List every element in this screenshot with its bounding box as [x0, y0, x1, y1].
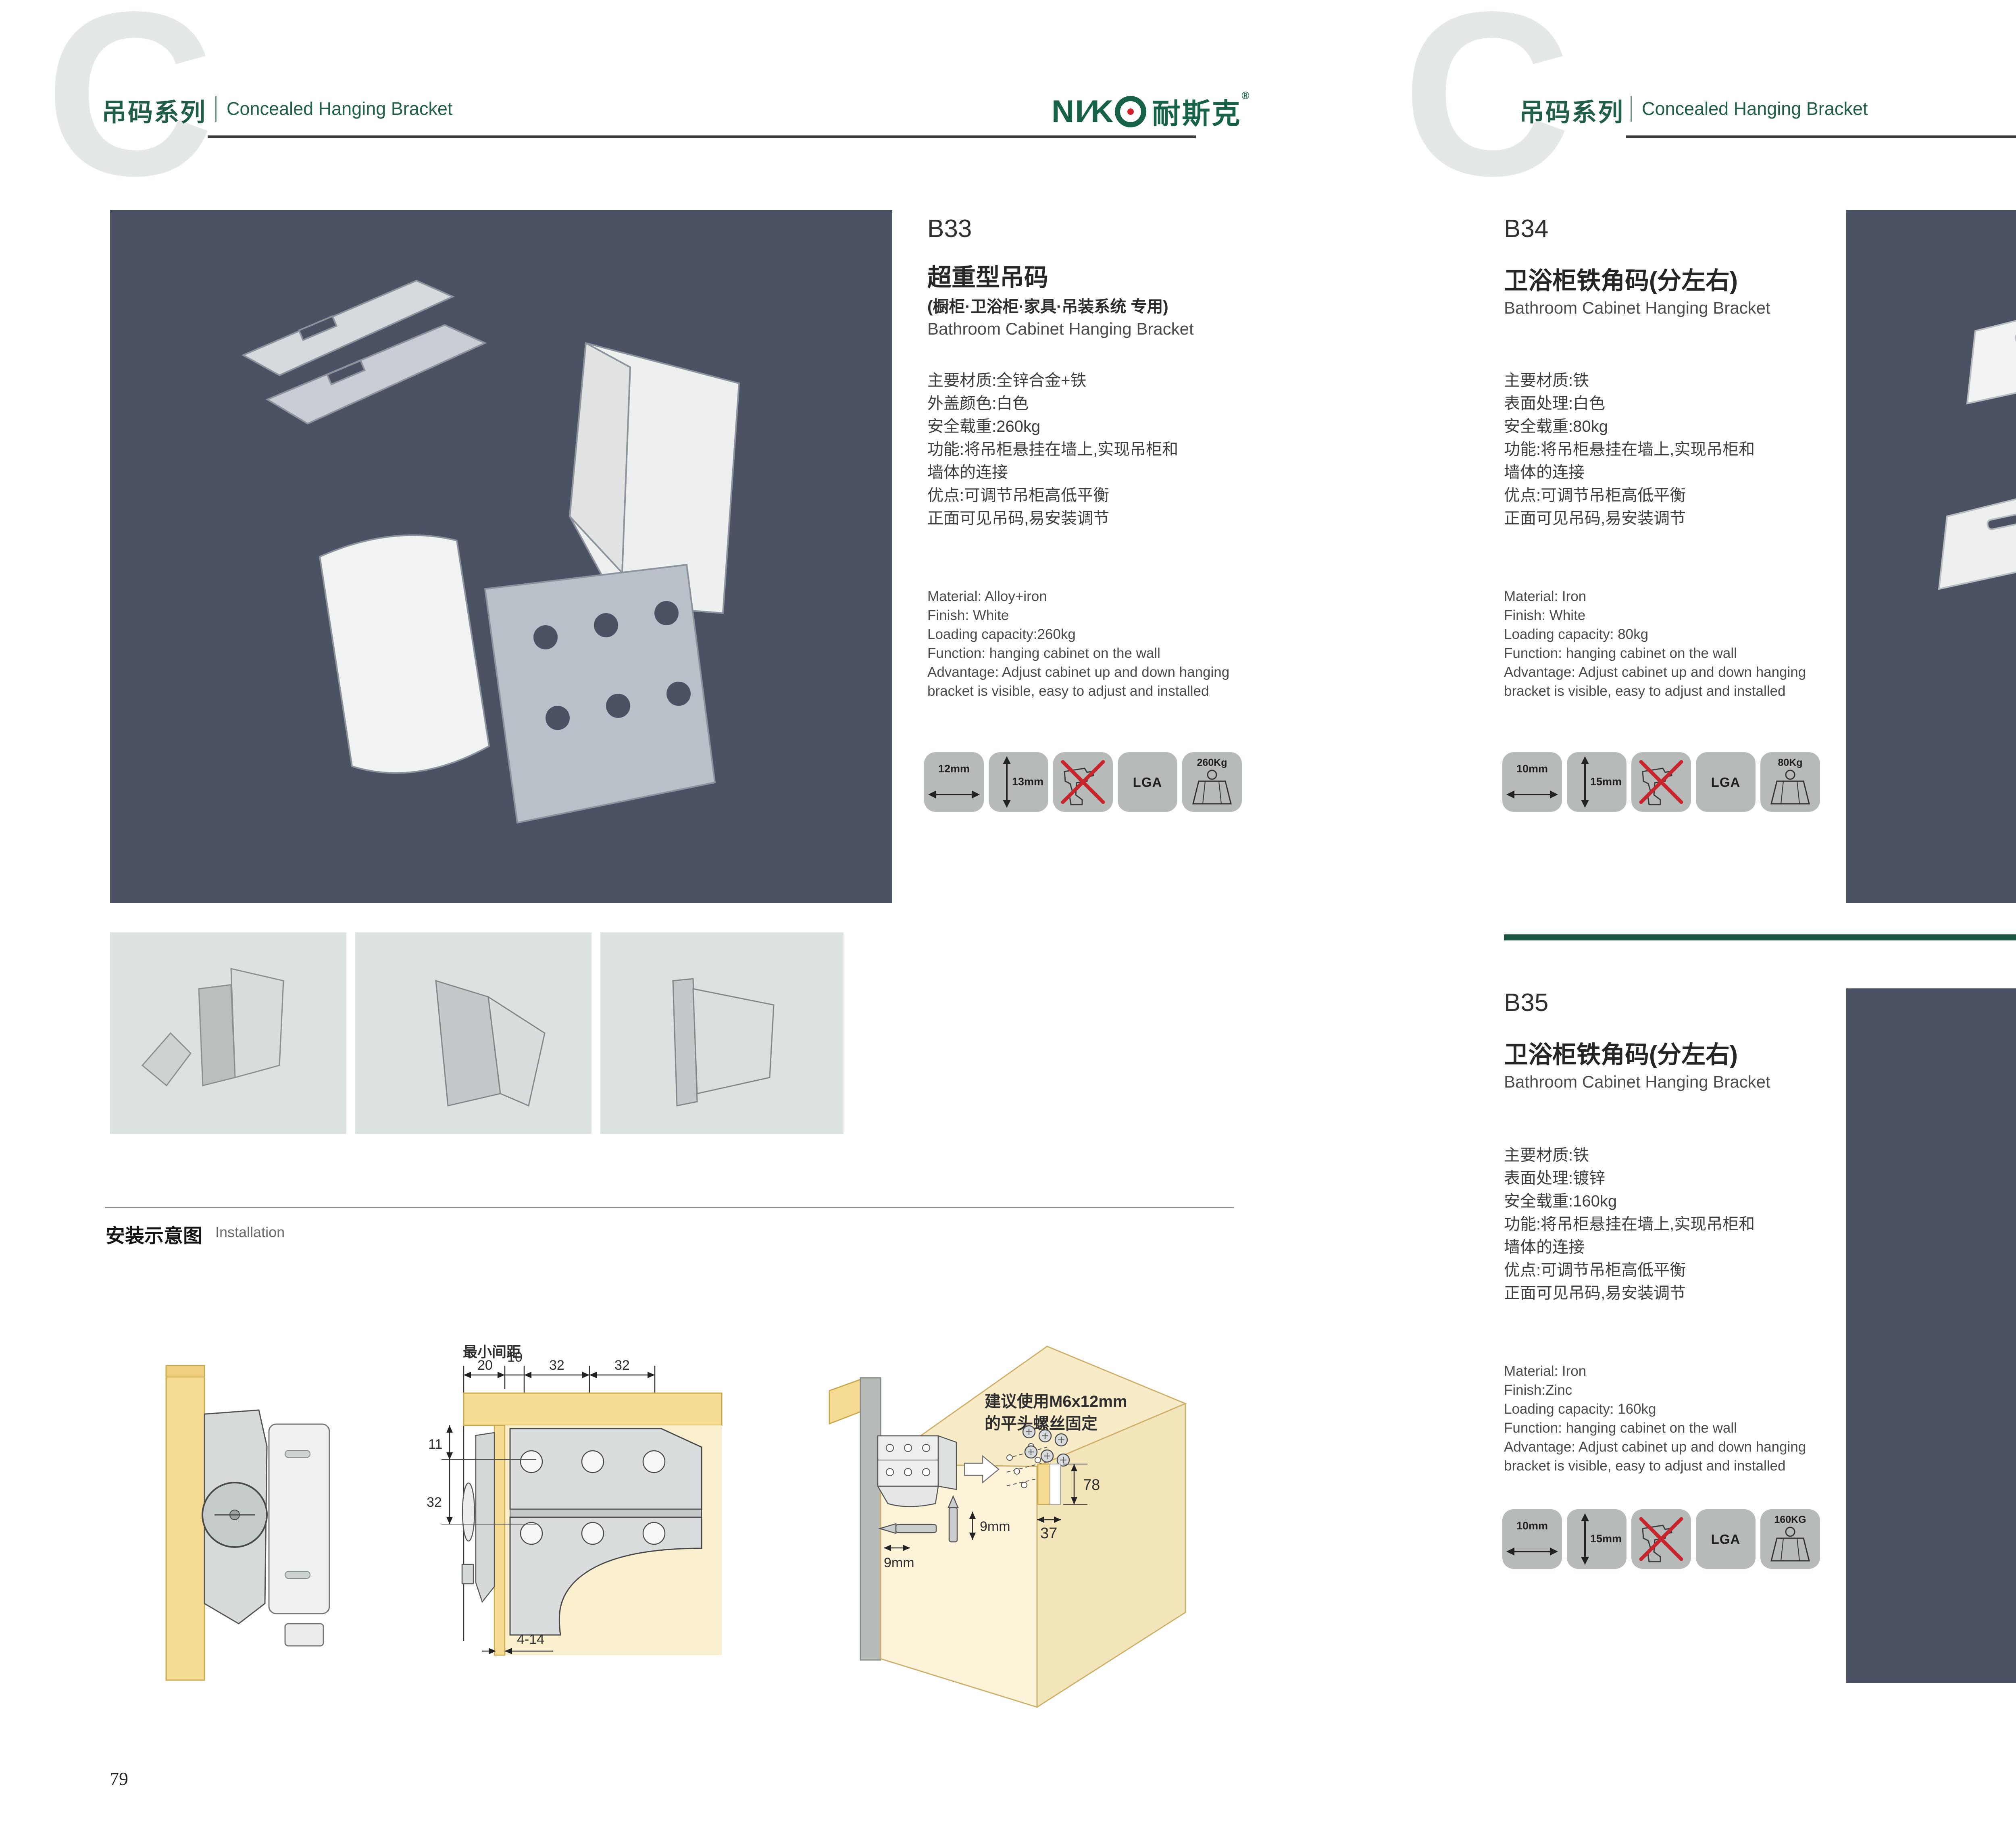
screw-note-line2: 的平头螺丝固定: [985, 1415, 1098, 1433]
b34-specs-en: Material: Iron Finish: White Loading cap…: [1504, 587, 1806, 701]
load-capacity-icon: 260Kg: [1182, 752, 1242, 812]
spec-line: 主要材质:铁: [1504, 1144, 1755, 1167]
panel-thickness-icon: 15mm: [1567, 752, 1627, 812]
spec-line: 安全载重:260kg: [927, 415, 1178, 438]
spec-line: Material: Iron: [1504, 1362, 1806, 1381]
logo-latin-text: NI∕K: [1052, 93, 1114, 130]
spec-line: 主要材质:铁: [1504, 369, 1755, 392]
load-capacity-icon: 160KG: [1760, 1509, 1820, 1569]
b35-code: B35: [1504, 988, 1548, 1017]
spec-line: bracket is visible, easy to adjust and i…: [1504, 682, 1806, 701]
b34-title-zh: 卫浴柜铁角码(分左右): [1504, 261, 1738, 296]
logo-zh-text: 耐斯克: [1152, 91, 1241, 132]
panel-width-icon: 12mm: [924, 752, 984, 812]
spec-line: 功能:将吊柜悬挂在墙上,实现吊柜和: [1504, 438, 1755, 461]
spec-line: 表面处理:镀锌: [1504, 1167, 1755, 1190]
panel-thickness-label: 15mm: [1590, 1533, 1624, 1545]
spec-line: Loading capacity:260kg: [927, 625, 1229, 644]
spec-line: 外盖颜色:白色: [927, 392, 1178, 415]
b34-product-photo: [1846, 210, 2016, 903]
spec-line: 墙体的连接: [1504, 461, 1755, 484]
spec-line: 主要材质:全锌合金+铁: [927, 369, 1178, 392]
panel-width-label: 12mm: [924, 763, 984, 775]
lga-label: LGA: [1696, 1532, 1756, 1547]
logo-registered-mark: ®: [1241, 89, 1249, 102]
no-drill-icon: [1631, 752, 1691, 812]
dim-9mm-vertical: 9mm: [980, 1519, 1010, 1534]
spec-line: Finish:Zinc: [1504, 1381, 1806, 1400]
installation-section-rule: [105, 1207, 1234, 1208]
dim-78: 78: [1083, 1477, 1100, 1493]
spec-line: Advantage: Adjust cabinet up and down ha…: [1504, 663, 1806, 682]
series-divider-bar: [215, 96, 217, 122]
no-drill-icon: [1631, 1509, 1691, 1569]
series-title-en: Concealed Hanging Bracket: [227, 98, 452, 119]
spec-line: Advantage: Adjust cabinet up and down ha…: [1504, 1437, 1806, 1456]
series-divider-bar: [1631, 96, 1632, 122]
spec-line: 功能:将吊柜悬挂在墙上,实现吊柜和: [927, 438, 1178, 461]
spec-line: Loading capacity: 80kg: [1504, 625, 1806, 644]
spec-line: Finish: White: [927, 606, 1229, 625]
b33-subtitle-zh: (橱柜·卫浴柜·家具·吊装系统 专用): [927, 293, 1168, 317]
b33-code: B33: [927, 214, 972, 243]
vertical-arrow-icon: [1001, 756, 1013, 808]
b34-code: B34: [1504, 214, 1548, 243]
b35-feature-icons: 10mm 15mm LGA 160KG: [1502, 1509, 1820, 1569]
b34-product-illustration: [1846, 210, 2016, 903]
b33-title-zh: 超重型吊码: [927, 258, 1048, 293]
lga-cert-icon: LGA: [1696, 1509, 1756, 1569]
spec-line: Finish: White: [1504, 606, 1806, 625]
panel-width-label: 10mm: [1502, 1520, 1562, 1532]
installation-diagram-dimensions: 最小间距 20 10 32 32: [403, 1341, 738, 1695]
b35-product-illustration: [1846, 988, 2016, 1683]
panel-width-icon: 10mm: [1502, 752, 1562, 812]
spec-line: Function: hanging cabinet on the wall: [927, 644, 1229, 663]
spec-line: 正面可见吊码,易安装调节: [927, 507, 1178, 530]
installation-diagram-cabinet: 建议使用M6x12mm 的平头螺丝固定: [827, 1330, 1190, 1713]
spec-line: 优点:可调节吊柜高低平衡: [1504, 1259, 1755, 1282]
panel-thickness-label: 15mm: [1590, 776, 1624, 788]
brand-logo: NI∕K 耐斯克 ®: [1052, 91, 1250, 132]
series-title-en: Concealed Hanging Bracket: [1642, 98, 1868, 119]
weight-icon: [1190, 769, 1234, 806]
panel-thickness-icon: 13mm: [989, 752, 1048, 812]
installation-heading-zh: 安装示意图: [106, 1220, 202, 1248]
spec-line: 优点:可调节吊柜高低平衡: [927, 484, 1178, 507]
dim-32c: 32: [427, 1495, 442, 1510]
spec-line: Advantage: Adjust cabinet up and down ha…: [927, 663, 1229, 682]
horizontal-arrow-icon: [928, 788, 980, 801]
b33-specs-zh: 主要材质:全锌合金+铁 外盖颜色:白色 安全载重:260kg 功能:将吊柜悬挂在…: [927, 369, 1178, 530]
page-number-left: 79: [110, 1768, 128, 1789]
screw-note-line1: 建议使用M6x12mm: [985, 1393, 1127, 1410]
lga-label: LGA: [1696, 775, 1756, 790]
panel-thickness-label: 13mm: [1012, 776, 1046, 788]
dim-37: 37: [1040, 1525, 1057, 1542]
spec-line: 墙体的连接: [927, 461, 1178, 484]
series-title-zh: 吊码系列: [1519, 92, 1624, 128]
spec-line: Loading capacity: 160kg: [1504, 1400, 1806, 1419]
spec-line: 安全载重:160kg: [1504, 1190, 1755, 1213]
b35-specs-en: Material: Iron Finish:Zinc Loading capac…: [1504, 1362, 1806, 1475]
b33-product-photo: [110, 210, 892, 903]
installation-heading-en: Installation: [215, 1224, 285, 1241]
lga-label: LGA: [1118, 775, 1177, 790]
load-label: 160KG: [1760, 1514, 1820, 1526]
spec-line: Function: hanging cabinet on the wall: [1504, 1419, 1806, 1437]
spec-line: bracket is visible, easy to adjust and i…: [927, 682, 1229, 701]
header-rule: [1626, 135, 2016, 138]
b33-thumbnail-3: [600, 932, 843, 1134]
b35-specs-zh: 主要材质:铁 表面处理:镀锌 安全载重:160kg 功能:将吊柜悬挂在墙上,实现…: [1504, 1144, 1755, 1305]
b34-title-en: Bathroom Cabinet Hanging Bracket: [1504, 298, 1770, 318]
dim-32b: 32: [614, 1358, 630, 1373]
b34-feature-icons: 10mm 15mm LGA 80Kg: [1502, 752, 1820, 812]
panel-width-label: 10mm: [1502, 763, 1562, 775]
lga-cert-icon: LGA: [1118, 752, 1177, 812]
spec-line: 表面处理:白色: [1504, 392, 1755, 415]
spec-line: 优点:可调节吊柜高低平衡: [1504, 484, 1755, 507]
b33-feature-icons: 12mm 13mm LGA 260Kg: [924, 752, 1242, 812]
dim-11: 11: [428, 1437, 442, 1452]
spec-line: 功能:将吊柜悬挂在墙上,实现吊柜和: [1504, 1213, 1755, 1236]
b35-product-photo: [1846, 988, 2016, 1683]
b34-specs-zh: 主要材质:铁 表面处理:白色 安全载重:80kg 功能:将吊柜悬挂在墙上,实现吊…: [1504, 369, 1755, 530]
dim-20: 20: [477, 1358, 493, 1373]
spec-line: Material: Iron: [1504, 587, 1806, 606]
lga-cert-icon: LGA: [1696, 752, 1756, 812]
spec-line: Function: hanging cabinet on the wall: [1504, 644, 1806, 663]
load-label: 80Kg: [1760, 757, 1820, 769]
spec-line: bracket is visible, easy to adjust and i…: [1504, 1456, 1806, 1475]
no-drill-icon: [1053, 752, 1113, 812]
dim-32a: 32: [549, 1358, 564, 1373]
catalog-spread: C 吊码系列 Concealed Hanging Bracket NI∕K 耐斯…: [0, 0, 2016, 1847]
spec-line: 墙体的连接: [1504, 1236, 1755, 1259]
b33-thumbnail-1: [110, 932, 346, 1134]
b33-title-en: Bathroom Cabinet Hanging Bracket: [927, 319, 1194, 339]
b33-product-illustration: [110, 210, 892, 903]
spec-line: 正面可见吊码,易安装调节: [1504, 1282, 1755, 1305]
b35-title-en: Bathroom Cabinet Hanging Bracket: [1504, 1072, 1770, 1092]
section-divider-green: [1504, 934, 2016, 940]
dim-9mm-horizontal: 9mm: [884, 1555, 914, 1570]
installation-diagram-side-section: [106, 1346, 396, 1689]
dim-4-14: 4-14: [517, 1632, 544, 1647]
spec-line: Material: Alloy+iron: [927, 587, 1229, 606]
header-rule: [208, 135, 1196, 138]
panel-thickness-icon: 15mm: [1567, 1509, 1627, 1569]
spec-line: 正面可见吊码,易安装调节: [1504, 507, 1755, 530]
load-capacity-icon: 80Kg: [1760, 752, 1820, 812]
load-label: 260Kg: [1182, 757, 1242, 769]
series-title-zh: 吊码系列: [102, 92, 206, 128]
b33-thumbnail-2: [355, 932, 591, 1134]
panel-width-icon: 10mm: [1502, 1509, 1562, 1569]
logo-o-target-icon: [1115, 96, 1146, 127]
spec-line: 安全载重:80kg: [1504, 415, 1755, 438]
dim-10: 10: [507, 1350, 523, 1365]
b33-specs-en: Material: Alloy+iron Finish: White Loadi…: [927, 587, 1229, 701]
b35-title-zh: 卫浴柜铁角码(分左右): [1504, 1035, 1738, 1070]
